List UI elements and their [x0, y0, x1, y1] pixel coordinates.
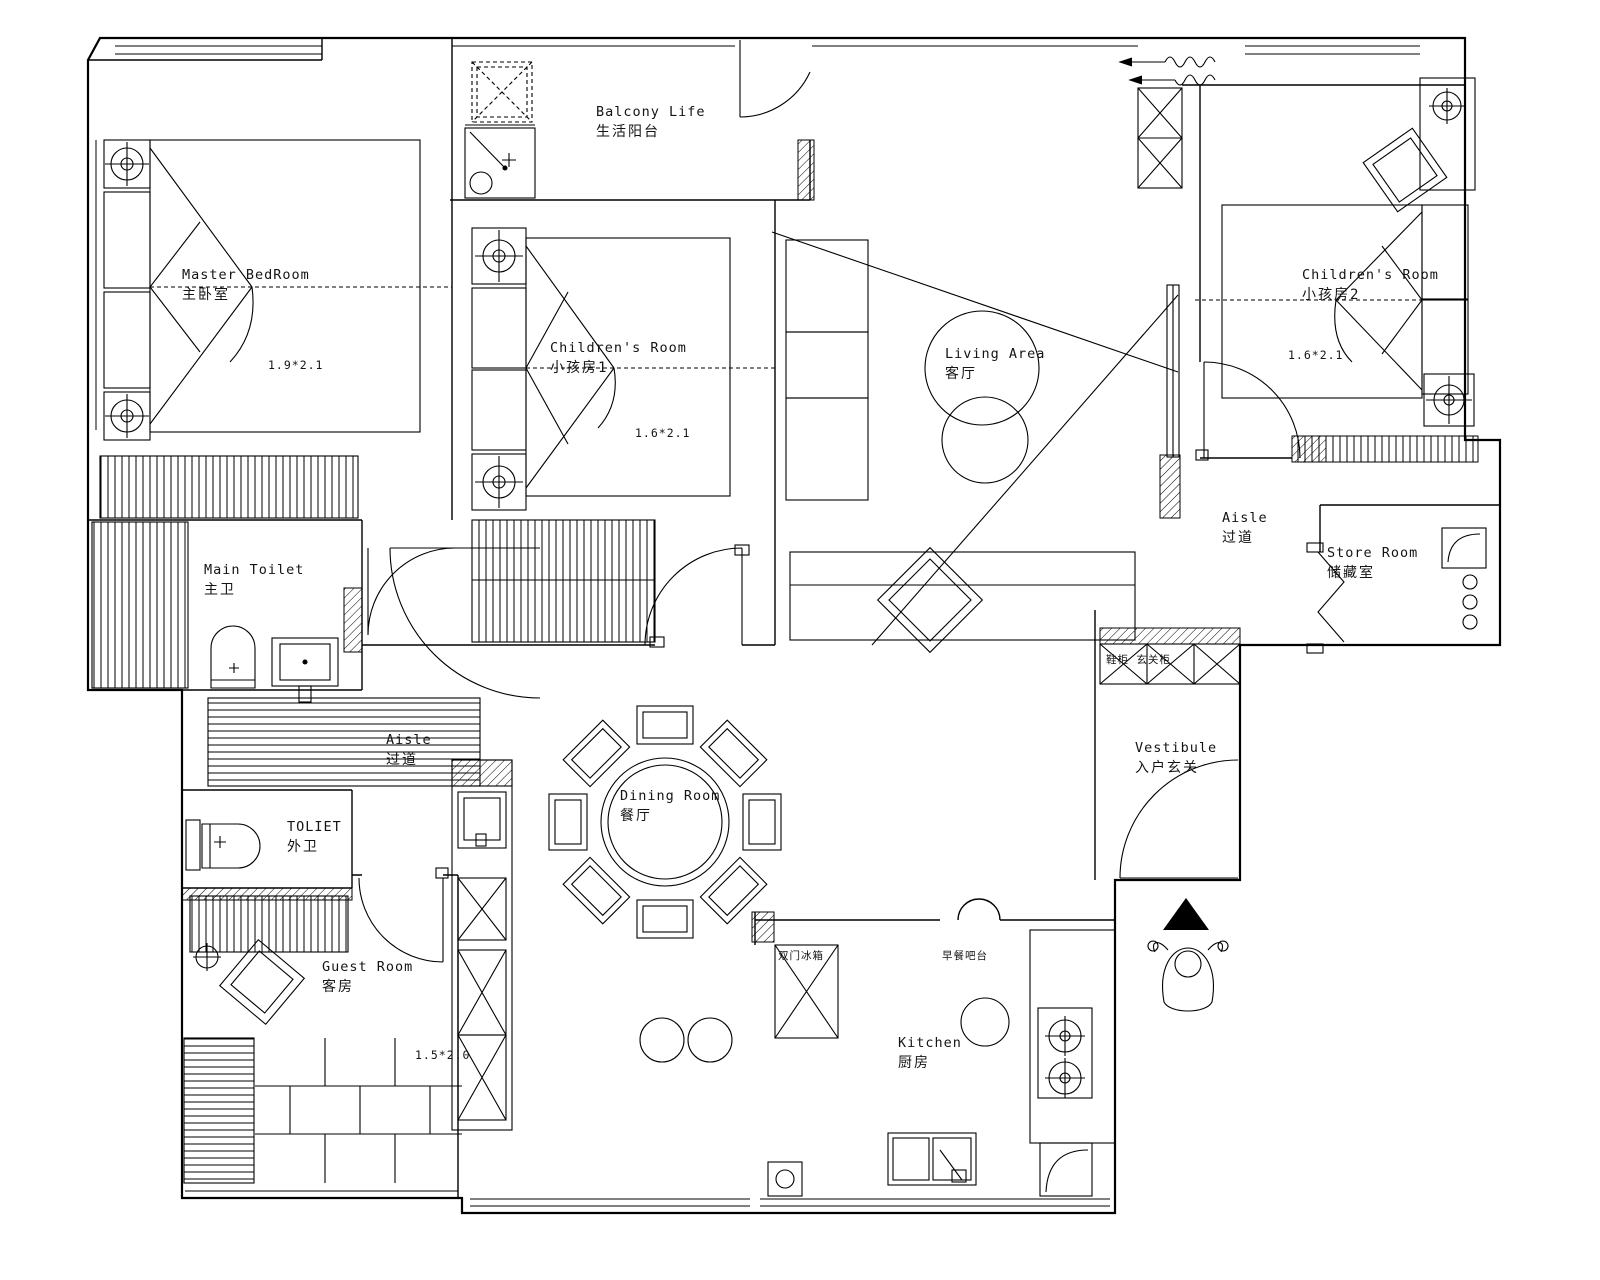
room-label-en: Dining Room: [620, 786, 720, 806]
room-label-childrens-room-2: Children's Room 小孩房2: [1302, 265, 1439, 305]
curtain-arrow-icon: [1142, 75, 1215, 85]
shower-area: [92, 522, 188, 688]
windows: [96, 46, 1478, 1206]
stool: [688, 1018, 732, 1062]
room-label-aisle-west: Aisle 过道: [386, 730, 432, 770]
kitchen-sink: [888, 1133, 976, 1185]
annotation-breakfast-bar: 早餐吧台: [942, 948, 988, 963]
annotation-fridge: 双门冰箱: [778, 948, 824, 963]
toilet-bowl: [211, 626, 255, 688]
room-label-en: Balcony Life: [596, 102, 706, 122]
floor-plan-drawing: [0, 0, 1600, 1280]
rug: [184, 1038, 254, 1183]
inner-walls: [88, 38, 1500, 1198]
room-label-en: TOLIET: [287, 817, 342, 837]
outer-walls: [88, 38, 1500, 1213]
nightstand: [472, 370, 526, 450]
room-label-guest-room: Guest Room 客房: [322, 957, 413, 997]
annotation-shoe-cabinet: 鞋柜 玄关柜: [1106, 652, 1171, 667]
room-label-zh: 小孩房1: [550, 358, 687, 378]
corner-unit: [1040, 1143, 1092, 1196]
vestibule-fixtures: [1100, 644, 1240, 1011]
room-label-zh: 过道: [386, 750, 432, 770]
room-label-balcony: Balcony Life 生活阳台: [596, 102, 706, 142]
room-label-kitchen: Kitchen 厨房: [898, 1033, 962, 1073]
nightstand: [104, 292, 150, 388]
floor-plan: Master BedRoom 主卧室 Balcony Life 生活阳台 Chi…: [0, 0, 1600, 1280]
living-area-furniture: [772, 232, 1179, 652]
room-label-zh: 生活阳台: [596, 122, 706, 142]
hallway-cabinet: [208, 698, 480, 786]
tall-cabinet: [452, 760, 512, 1130]
room-label-en: Store Room: [1327, 543, 1418, 563]
door-swing-icon: [740, 40, 810, 117]
door-swing-icon: [368, 548, 455, 635]
tv-cabinet: [786, 332, 868, 398]
nightstand: [472, 288, 526, 368]
room-label-zh: 厨房: [898, 1053, 962, 1073]
room-label-zh: 储藏室: [1327, 563, 1418, 583]
pillow: [1363, 128, 1447, 212]
armchair: [878, 548, 983, 653]
room-label-zh: 入户玄关: [1135, 758, 1217, 778]
room-label-en: Aisle: [1222, 508, 1268, 528]
room-label-aisle-east: Aisle 过道: [1222, 508, 1268, 548]
room-label-en: Children's Room: [550, 338, 687, 358]
bed-dimension-guest: 1.5*2.0: [415, 1048, 470, 1062]
door-swing-icon: [645, 548, 742, 645]
room-label-en: Aisle: [386, 730, 432, 750]
room-label-master-bedroom: Master BedRoom 主卧室: [182, 265, 310, 305]
room-label-zh: 小孩房2: [1302, 285, 1439, 305]
room-label-childrens-room-1: Children's Room 小孩房1: [550, 338, 687, 378]
nightstand: [1422, 300, 1468, 394]
room-label-en: Living Area: [945, 344, 1045, 364]
master-wardrobe: [100, 456, 358, 518]
room-label-zh: 过道: [1222, 528, 1268, 548]
person-figure-icon: [1148, 941, 1228, 1011]
room-label-zh: 餐厅: [620, 806, 720, 826]
door-swing-icon: [1204, 362, 1300, 458]
room-label-living-area: Living Area 客厅: [945, 344, 1045, 384]
sofa: [790, 552, 1135, 640]
stool: [961, 998, 1009, 1046]
room-label-en: Children's Room: [1302, 265, 1439, 285]
room-label-en: Guest Room: [322, 957, 413, 977]
room-label-zh: 外卫: [287, 837, 342, 857]
washing-machine: [472, 62, 532, 122]
room-label-store-room: Store Room 储藏室: [1327, 543, 1418, 583]
tv-cabinet: [786, 398, 868, 500]
tv-cabinet: [786, 240, 868, 332]
guest-wardrobe: [190, 896, 348, 952]
room-label-dining-room: Dining Room 餐厅: [620, 786, 720, 826]
room-label-vestibule: Vestibule 入户玄关: [1135, 738, 1217, 778]
room-label-zh: 客房: [322, 977, 413, 997]
ceiling-fan: [942, 397, 1028, 483]
room-label-zh: 主卧室: [182, 285, 310, 305]
west-fixtures: [184, 698, 480, 1183]
childrens-room-1-furniture: [472, 228, 775, 647]
floor-drain-icon: [470, 172, 492, 194]
door-swing-icon: [359, 878, 443, 962]
dining-room-furniture: [452, 706, 781, 1130]
room-label-en: Kitchen: [898, 1033, 962, 1053]
curtain-arrow-icon: [1132, 57, 1215, 67]
room-label-zh: 主卫: [204, 580, 304, 600]
bed-dimension-master: 1.9*2.1: [268, 358, 323, 372]
room-label-en: Vestibule: [1135, 738, 1217, 758]
stool: [640, 1018, 684, 1062]
north-triangle-icon: [1163, 898, 1209, 930]
room-label-main-toilet: Main Toilet 主卫: [204, 560, 304, 600]
breakfast-bar-counter: [958, 899, 1000, 920]
sightline: [772, 232, 1178, 645]
room-label-toilet: TOLIET 外卫: [287, 817, 342, 857]
sprinkler-icon: [502, 153, 516, 167]
childrens-wardrobe-1: [472, 520, 655, 642]
toilet-bowl: [202, 824, 260, 868]
room-label-zh: 客厅: [945, 364, 1045, 384]
room-label-en: Main Toilet: [204, 560, 304, 580]
bed-dimension-childrens-2: 1.6*2.1: [1288, 348, 1343, 362]
master-bedroom-furniture: [100, 140, 452, 518]
nightstand: [104, 192, 150, 288]
room-label-en: Master BedRoom: [182, 265, 310, 285]
bed-dimension-childrens-1: 1.6*2.1: [635, 426, 690, 440]
north-corridor: [1120, 57, 1215, 188]
